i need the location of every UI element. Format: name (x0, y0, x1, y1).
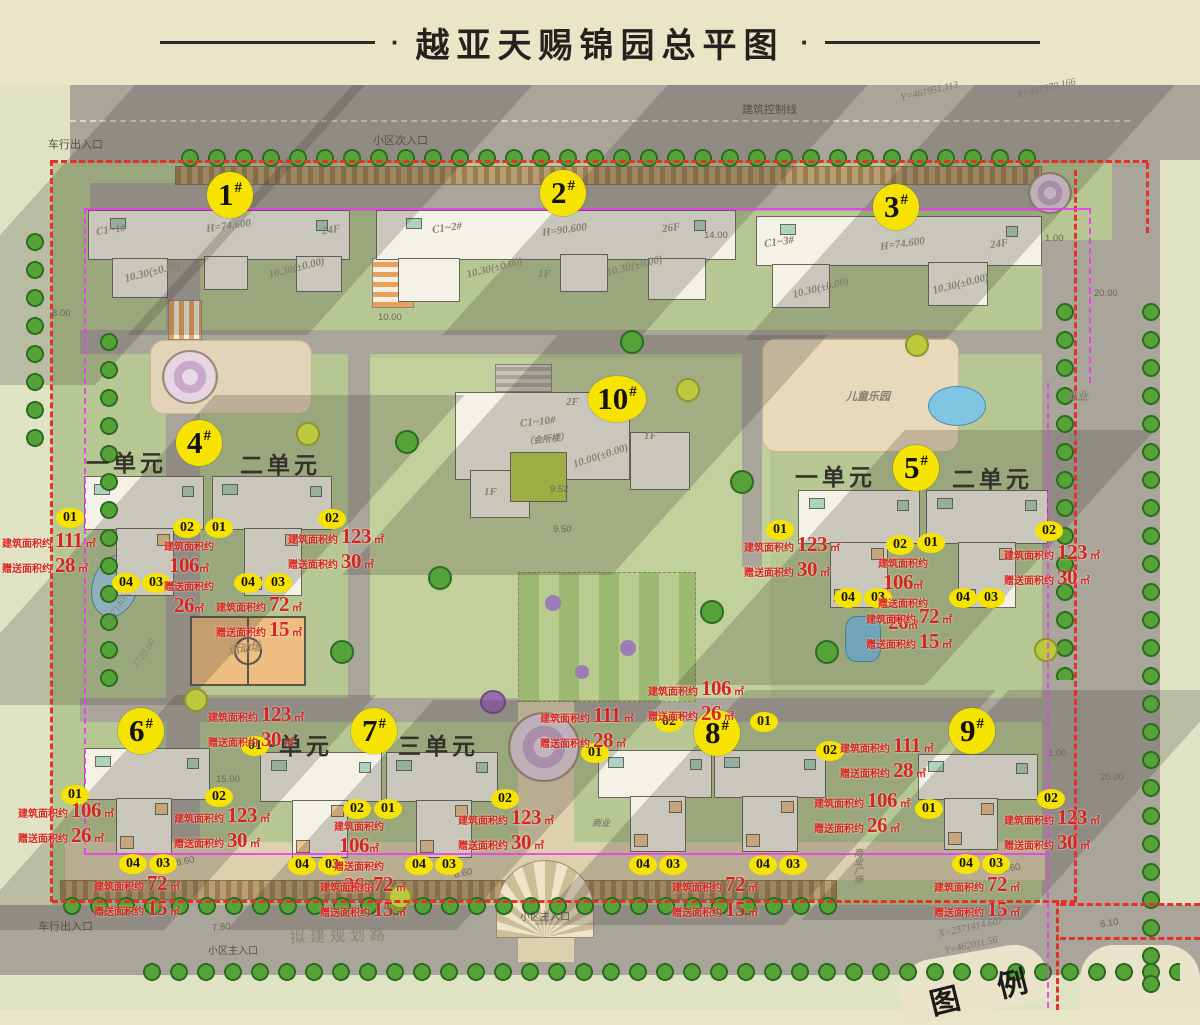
area-annotation-8-0403: 建筑面积约72㎡ 赠送面积约15㎡ (672, 872, 758, 922)
tree-col-left (98, 330, 122, 690)
area-annotation-8-02: 建筑面积约111㎡ 赠送面积约28㎡ (840, 733, 934, 783)
area-build-label: 建筑面积约 (216, 599, 266, 614)
badge-num: 3 (884, 189, 900, 225)
tree (428, 566, 452, 590)
sqm: ㎡ (924, 740, 934, 755)
clubhouse-2f: 2F (566, 396, 579, 408)
area-build-value: 123 (1057, 540, 1087, 565)
sqm: ㎡ (104, 805, 114, 820)
tree (330, 640, 354, 664)
area-gift-label: 赠送面积约 (540, 735, 590, 750)
yellow-tree (905, 333, 929, 357)
badge-hash: # (901, 192, 909, 209)
area-gift-value: 26 (867, 813, 887, 838)
area-gift-label: 赠送面积约 (840, 765, 890, 780)
area-build-label: 建筑面积约 (164, 538, 214, 553)
dim-2000-bottom: 20.00 (1100, 772, 1124, 783)
area-gift-label: 赠送面积约 (1004, 837, 1054, 852)
red-line-bottom (52, 900, 1076, 903)
building-6 (84, 748, 210, 800)
area-gift-value: 30 (1057, 830, 1077, 855)
area-build-label: 建筑面积约 (1004, 547, 1054, 562)
sqm: ㎡ (734, 683, 744, 698)
unit-badge-02: 02 (343, 799, 371, 819)
unit-badge-03: 03 (435, 855, 463, 875)
building-8-unit2 (714, 750, 826, 798)
area-annotation-4-01: 建筑面积约111㎡ 赠送面积约28㎡ (2, 528, 96, 578)
area-gift-label: 赠送面积约 (814, 820, 864, 835)
area-build-value: 106 (339, 833, 369, 857)
area-gift-value: 28 (593, 728, 613, 753)
area-gift-label: 赠送面积约 (2, 560, 52, 575)
area-build-value: 106 (701, 676, 731, 701)
area-gift-label: 赠送面积约 (334, 858, 384, 873)
area-gift-label: 赠送面积约 (934, 904, 984, 919)
badge-building-5: 5# (893, 445, 939, 491)
unit-badge-04: 04 (288, 855, 316, 875)
area-build-label: 建筑面积约 (94, 878, 144, 893)
unit-badge-01: 01 (750, 712, 778, 732)
unit-badge-02: 02 (886, 535, 914, 555)
area-build-label: 建筑面积约 (540, 710, 590, 725)
title-dot-right: · (801, 29, 810, 55)
bldg3-floors: 24F (989, 237, 1009, 251)
badge-hash: # (235, 180, 243, 197)
sqm: ㎡ (170, 878, 180, 893)
unit-badge-01: 01 (917, 533, 945, 553)
yellow-tree (184, 688, 208, 712)
building-8-wing2 (742, 796, 798, 852)
bldg2-floors: 26F (661, 221, 681, 235)
area-annotation-4-02: 建筑面积约123㎡ 赠送面积约30㎡ (288, 524, 384, 574)
area-gift-label: 赠送面积约 (458, 837, 508, 852)
badge-num: 4 (187, 425, 203, 461)
sqm: ㎡ (942, 636, 952, 651)
unit-badge-03: 03 (982, 854, 1010, 874)
area-gift-label: 赠送面积约 (208, 734, 258, 749)
area-annotation-7-02: 建筑面积约123㎡ 赠送面积约30㎡ (458, 805, 554, 855)
badge-num: 5 (904, 450, 920, 486)
badge-building-2: 2# (540, 170, 586, 216)
building-2-tower-a (398, 258, 460, 302)
dim-2000-top: 20.00 (1094, 288, 1118, 299)
area-build-label: 建筑面积约 (744, 539, 794, 554)
unit-badge-04: 04 (234, 573, 262, 593)
area-build-value: 111 (593, 703, 621, 728)
yellow-tree (1034, 638, 1058, 662)
garden-plot-3 (575, 665, 589, 679)
area-build-label: 建筑面积约 (288, 531, 338, 546)
label-commercial: 商业 (1066, 388, 1088, 404)
area-build-value: 111 (55, 528, 83, 553)
sqm: ㎡ (544, 812, 554, 827)
sqm: ㎡ (194, 604, 204, 615)
unit-badge-02: 02 (1035, 521, 1063, 541)
yellow-tree (296, 422, 320, 446)
tree-col-far-left (24, 230, 48, 450)
area-gift-value: 26 (71, 823, 91, 848)
area-build-value: 123 (227, 803, 257, 828)
building-1-tower-b (204, 256, 248, 290)
red-line-br-h2 (1060, 937, 1200, 940)
unit-badge-04: 04 (629, 855, 657, 875)
label-commercial-floor: 1F (1068, 432, 1081, 444)
clubhouse-steps (495, 364, 552, 392)
badge-building-4: 4# (176, 420, 222, 466)
area-annotation-7-01: 建筑面积约123㎡ 赠送面积约30㎡ (208, 702, 304, 752)
sqm: ㎡ (900, 795, 910, 810)
area-build-value: 72 (919, 604, 939, 629)
area-annotation-5-02: 建筑面积约123㎡ 赠送面积约30㎡ (1004, 540, 1100, 590)
clubhouse-1f-a: 1F (644, 430, 657, 442)
area-gift-label: 赠送面积约 (216, 624, 266, 639)
sqm: ㎡ (94, 830, 104, 845)
area-gift-value: 15 (373, 897, 393, 922)
title-rule-right (825, 41, 1040, 44)
area-build-value: 123 (1057, 805, 1087, 830)
area-build-value: 72 (147, 871, 167, 896)
area-build-label: 建筑面积约 (648, 683, 698, 698)
unit-badge-01: 01 (205, 518, 233, 538)
dim-1000: 10.00 (378, 312, 402, 323)
sqm: ㎡ (86, 535, 96, 550)
area-annotation-8-top: 建筑面积约106㎡ 赠送面积约26㎡ (648, 676, 744, 726)
area-gift-value: 30 (261, 727, 281, 752)
page-title: 越亚天赐锦园总平图 (416, 18, 785, 67)
sqm: ㎡ (624, 710, 634, 725)
unit-label-5-left: 一单元 (795, 458, 876, 492)
site-plan-page: { "title": "越亚天赐锦园总平图", "buildings": [ {… (0, 0, 1200, 1010)
magenta-line-right (1047, 383, 1049, 1008)
area-build-label: 建筑面积约 (866, 611, 916, 626)
building-5-unit2 (926, 490, 1048, 544)
sqm: ㎡ (292, 624, 302, 639)
unit-badge-04: 04 (949, 588, 977, 608)
area-annotation-8-01: 建筑面积约111㎡ 赠送面积约28㎡ (540, 703, 634, 753)
sqm: ㎡ (199, 564, 209, 575)
top-road-lane-marking (70, 120, 1130, 122)
badge-hash: # (921, 453, 929, 470)
sqm: ㎡ (1090, 547, 1100, 562)
sqm: ㎡ (374, 531, 384, 546)
unit-badge-03: 03 (264, 573, 292, 593)
magenta-line-right-upper (1089, 208, 1091, 383)
sqm: ㎡ (724, 708, 734, 723)
area-gift-value: 15 (919, 629, 939, 654)
unit-badge-04: 04 (405, 855, 433, 875)
area-gift-value: 30 (797, 557, 817, 582)
area-build-value: 72 (725, 872, 745, 897)
area-build-value: 106 (71, 798, 101, 823)
garden-plot-1 (545, 595, 561, 611)
area-gift-label: 赠送面积约 (744, 564, 794, 579)
magenta-line-bottom (84, 853, 1048, 855)
unit-badge-03: 03 (779, 855, 807, 875)
area-build-value: 123 (341, 524, 371, 549)
red-line-top (52, 160, 1148, 163)
sqm: ㎡ (748, 904, 758, 919)
unit-label-5-right: 二单元 (952, 460, 1033, 494)
area-build-value: 106 (169, 553, 199, 577)
badge-num: 10 (597, 381, 628, 417)
sqm: ㎡ (820, 564, 830, 579)
label-children-playground: 儿童乐园 (846, 388, 890, 404)
clubhouse-annex (630, 432, 690, 490)
sqm: ㎡ (1080, 572, 1090, 587)
sqm: ㎡ (942, 611, 952, 626)
sqm: ㎡ (830, 539, 840, 554)
area-build-label: 建筑面积约 (814, 795, 864, 810)
outer-right-field (1160, 160, 1200, 1010)
building-9 (918, 754, 1038, 800)
tree-col-right (1140, 300, 1164, 1000)
badge-num: 1 (218, 177, 234, 213)
area-gift-value: 15 (987, 897, 1007, 922)
top-left-corner (0, 85, 70, 165)
dim-780: 7.80 (211, 921, 231, 934)
tree-row-top (178, 146, 1038, 170)
label-main-entry: 小区主入口 (208, 942, 258, 957)
building-6-wing (116, 798, 172, 854)
unit-badge-01: 01 (915, 799, 943, 819)
area-build-label: 建筑面积约 (840, 740, 890, 755)
area-gift-value: 30 (1057, 565, 1077, 590)
area-build-value: 111 (893, 733, 921, 758)
area-gift-value: 15 (725, 897, 745, 922)
crosswalk-2 (168, 300, 202, 340)
purple-shrub (480, 690, 506, 714)
area-annotation-4-0403: 建筑面积约72㎡ 赠送面积约15㎡ (216, 592, 302, 642)
area-build-label: 建筑面积约 (934, 879, 984, 894)
area-gift-value: 30 (227, 828, 247, 853)
area-annotation-5-01: 建筑面积约123㎡ 赠送面积约30㎡ (744, 532, 840, 582)
sqm: ㎡ (890, 820, 900, 835)
badge-building-7: 7# (351, 708, 397, 754)
area-gift-label: 赠送面积约 (18, 830, 68, 845)
dim-100-top: 1.00 (1045, 233, 1064, 244)
unit-badge-04: 04 (952, 854, 980, 874)
label-main-entry-2: 小区主入口 (520, 908, 570, 923)
area-build-label: 建筑面积约 (320, 879, 370, 894)
sqm: ㎡ (534, 837, 544, 852)
area-annotation-7-0403: 建筑面积约72㎡ 赠送面积约15㎡ (320, 872, 406, 922)
label-vehicle-gate-bottom: 车行出入口 (38, 918, 93, 934)
red-line-right-top (1146, 163, 1149, 233)
badge-building-10: 10# (588, 376, 646, 422)
area-gift-label: 赠送面积约 (1004, 572, 1054, 587)
area-annotation-9-02: 建筑面积约123㎡ 赠送面积约30㎡ (1004, 805, 1100, 855)
unit-badge-04: 04 (112, 573, 140, 593)
badge-hash: # (629, 384, 637, 401)
badge-num: 2 (551, 175, 567, 211)
title-dot-left: · (391, 29, 400, 55)
badge-building-3: 3# (873, 184, 919, 230)
label-commercial-2: 商业 (592, 816, 610, 829)
sqm: ㎡ (616, 735, 626, 750)
area-build-label: 建筑面积约 (174, 810, 224, 825)
area-annotation-9-0403: 建筑面积约72㎡ 赠送面积约15㎡ (934, 872, 1020, 922)
badge-hash: # (568, 178, 576, 195)
badge-hash: # (204, 428, 212, 445)
tree (620, 330, 644, 354)
sqm: ㎡ (1010, 904, 1020, 919)
title-rule-left (160, 41, 375, 44)
unit-label-4-right: 二单元 (240, 446, 321, 480)
area-build-label: 建筑面积约 (878, 555, 928, 570)
badge-num: 9 (960, 713, 976, 749)
area-build-value: 123 (261, 702, 291, 727)
area-build-label: 建筑面积约 (672, 879, 722, 894)
area-gift-value: 26 (701, 701, 721, 726)
area-gift-label: 赠送面积约 (866, 636, 916, 651)
area-build-label: 建筑面积约 (1004, 812, 1054, 827)
area-build-value: 106 (883, 570, 913, 594)
area-gift-value: 28 (893, 758, 913, 783)
building-8-wing1 (630, 796, 686, 852)
building-2-podium (560, 254, 608, 292)
sqm: ㎡ (396, 904, 406, 919)
unit-badge-04: 04 (834, 588, 862, 608)
area-gift-value: 28 (55, 553, 75, 578)
area-gift-label: 赠送面积约 (174, 835, 224, 850)
pool-northeast (928, 386, 986, 426)
garden-plot-2 (620, 640, 636, 656)
badge-num: 7 (362, 713, 378, 749)
sqm: ㎡ (369, 844, 379, 855)
sqm: ㎡ (913, 581, 923, 592)
sqm: ㎡ (284, 734, 294, 749)
badge-hash: # (379, 716, 387, 733)
area-annotation-9-01: 建筑面积约106㎡ 赠送面积约26㎡ (814, 788, 910, 838)
bldg2-1f: 1F (538, 268, 551, 280)
sqm: ㎡ (748, 879, 758, 894)
area-build-value: 72 (373, 872, 393, 897)
area-build-value: 106 (867, 788, 897, 813)
label-building-control-line: 建筑控制线 (742, 101, 797, 117)
elev-952: 9.52 (550, 484, 569, 495)
label-vehicle-gate-top: 车行出入口 (48, 136, 103, 152)
area-gift-label: 赠送面积约 (320, 904, 370, 919)
sqm: ㎡ (1090, 812, 1100, 827)
dim-14: 14.00 (704, 230, 728, 241)
sqm: ㎡ (260, 810, 270, 825)
area-gift-label: 赠送面积约 (288, 556, 338, 571)
sqm: ㎡ (250, 835, 260, 850)
building-8-unit1 (598, 750, 712, 798)
unit-badge-02: 02 (173, 518, 201, 538)
area-gift-value: 26 (174, 593, 194, 617)
sqm: ㎡ (364, 556, 374, 571)
north-plaza-circle (162, 350, 218, 404)
label-planned-road: 拟建规划路 (290, 923, 391, 947)
area-gift-value: 15 (147, 896, 167, 921)
badge-num: 6 (129, 713, 145, 749)
unit-badge-01: 01 (374, 799, 402, 819)
area-build-label: 建筑面积约 (334, 818, 384, 833)
label-north-secondary-entry: 小区次入口 (373, 132, 428, 148)
area-build-value: 72 (987, 872, 1007, 897)
red-line-bottom-right (1056, 900, 1059, 1010)
badge-hash: # (146, 716, 154, 733)
area-annotation-6-02: 建筑面积约123㎡ 赠送面积约30㎡ (174, 803, 270, 853)
area-gift-label: 赠送面积约 (164, 578, 214, 593)
dim-800-left: 8.00 (52, 308, 71, 319)
bldg1-floors: 24F (321, 223, 341, 237)
unit-label-7-right: 三单元 (398, 727, 479, 761)
area-gift-label: 赠送面积约 (94, 903, 144, 918)
badge-building-6: 6# (118, 708, 164, 754)
red-line-right (1074, 170, 1077, 902)
area-build-label: 建筑面积约 (18, 805, 68, 820)
tree (730, 470, 754, 494)
area-annotation-5-0403: 建筑面积约72㎡ 赠送面积约15㎡ (866, 604, 952, 654)
building-9-wing (944, 798, 998, 850)
area-gift-value: 30 (341, 549, 361, 574)
sqm: ㎡ (916, 765, 926, 780)
area-gift-label: 赠送面积约 (672, 904, 722, 919)
unit-badge-03: 03 (977, 588, 1005, 608)
elev-950: 9.50 (553, 524, 572, 535)
tree (815, 640, 839, 664)
area-gift-value: 15 (269, 617, 289, 642)
area-build-label: 建筑面积约 (458, 812, 508, 827)
unit-label-4-left: 一单元 (86, 444, 167, 478)
title-bar: · 越亚天赐锦园总平图 · (0, 16, 1200, 68)
area-build-value: 123 (511, 805, 541, 830)
area-gift-label: 赠送面积约 (648, 708, 698, 723)
area-gift-value: 30 (511, 830, 531, 855)
area-annotation-6-01: 建筑面积约106㎡ 赠送面积约26㎡ (18, 798, 114, 848)
building-1-slab (88, 210, 350, 260)
badge-building-1: 1# (207, 172, 253, 218)
unit-badge-01: 01 (56, 508, 84, 528)
sqm: ㎡ (294, 709, 304, 724)
label-commercial-plaza: 商业广场 (852, 848, 865, 884)
badge-hash: # (977, 716, 985, 733)
area-annotation-6-0403: 建筑面积约72㎡ 赠送面积约15㎡ (94, 871, 180, 921)
sqm: ㎡ (1080, 837, 1090, 852)
sqm: ㎡ (1010, 879, 1020, 894)
badge-building-9: 9# (949, 708, 995, 754)
dim-1500: 15.00 (216, 774, 240, 785)
dim-100-bottom: 1.00 (1048, 748, 1067, 759)
area-build-value: 72 (269, 592, 289, 617)
sqm: ㎡ (78, 560, 88, 575)
area-build-label: 建筑面积约 (2, 535, 52, 550)
tree (395, 430, 419, 454)
sqm: ㎡ (170, 903, 180, 918)
red-line-br-h1 (1060, 903, 1200, 906)
area-build-label: 建筑面积约 (208, 709, 258, 724)
area-annotation-4-0201: 建筑面积约 106㎡ 赠送面积约 26㎡ (164, 538, 214, 618)
area-build-value: 123 (797, 532, 827, 557)
sqm: ㎡ (396, 879, 406, 894)
tree (700, 600, 724, 624)
sqm: ㎡ (292, 599, 302, 614)
clubhouse-1f-b: 1F (484, 486, 497, 498)
yellow-tree (676, 378, 700, 402)
